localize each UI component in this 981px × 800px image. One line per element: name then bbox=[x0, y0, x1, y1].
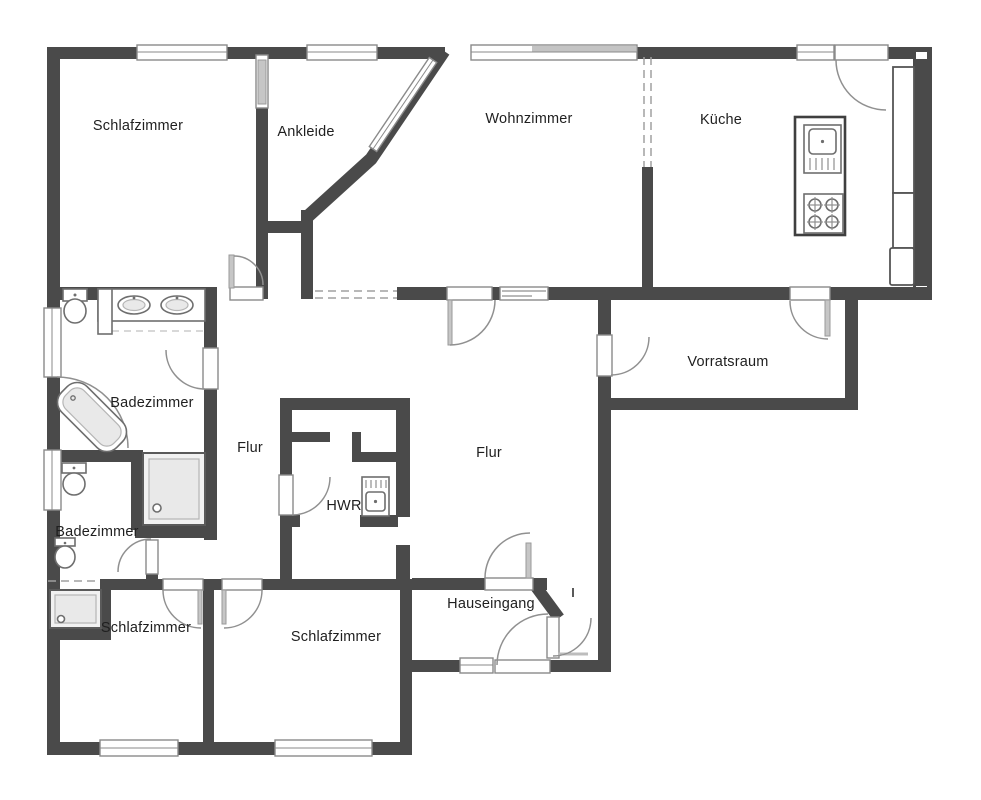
wall-segment bbox=[262, 579, 412, 590]
door-badezimmer-gross bbox=[166, 348, 218, 389]
wall-segment bbox=[396, 398, 410, 517]
wall-segment bbox=[292, 432, 330, 442]
wall-segment bbox=[178, 742, 275, 755]
wall-segment bbox=[47, 47, 60, 308]
door-hwr bbox=[279, 475, 330, 515]
window bbox=[44, 450, 61, 510]
wall-segment bbox=[598, 398, 858, 410]
wall-segment bbox=[598, 375, 611, 672]
tall-cabinet bbox=[890, 67, 914, 285]
wall-segment bbox=[47, 47, 137, 59]
wall-segment bbox=[913, 47, 932, 298]
window bbox=[797, 45, 834, 60]
room-label-schlafzimmer-nw: Schlafzimmer bbox=[93, 118, 183, 134]
window bbox=[44, 308, 61, 377]
room-label-schlafzimmer-sm: Schlafzimmer bbox=[291, 629, 381, 645]
room-label-flur-links: Flur bbox=[237, 440, 263, 456]
room-label-badezimmer-gross: Badezimmer bbox=[110, 395, 193, 411]
wall-segment bbox=[203, 590, 214, 742]
wall-segment bbox=[280, 398, 408, 410]
toilet bbox=[63, 289, 87, 323]
door-kueche-aussen bbox=[835, 45, 888, 110]
room-label-ankleide: Ankleide bbox=[277, 124, 334, 140]
wall-notch bbox=[916, 52, 927, 59]
room-label-hauseingang: Hauseingang bbox=[447, 596, 535, 612]
shower bbox=[50, 590, 101, 628]
floor-plan: Schlafzimmer Ankleide Wohnzimmer Küche V… bbox=[0, 0, 981, 800]
wall-segment bbox=[637, 47, 797, 59]
wall-segment bbox=[612, 287, 790, 300]
wall-segment bbox=[280, 410, 292, 475]
wall-segment bbox=[292, 515, 300, 527]
fixtures bbox=[50, 67, 914, 628]
sliding-door bbox=[500, 287, 548, 300]
door-badezimmer-klein bbox=[118, 539, 158, 574]
wall-segment bbox=[550, 660, 608, 672]
sliding-pocket-door bbox=[256, 55, 268, 108]
bathtub bbox=[52, 377, 133, 458]
window bbox=[307, 45, 377, 60]
wall-segment bbox=[135, 525, 217, 538]
wall-segment bbox=[280, 515, 292, 588]
kitchen-island bbox=[795, 117, 845, 235]
door-hauseingang-aussen bbox=[495, 614, 550, 673]
door-schlafzimmer-sm bbox=[222, 579, 262, 628]
wall-segment bbox=[397, 287, 447, 300]
wall-segment bbox=[412, 660, 460, 672]
wall-segment bbox=[204, 296, 217, 348]
washing-machine bbox=[362, 477, 389, 516]
door-wohnzimmer-flur bbox=[447, 287, 495, 345]
stove-icon bbox=[804, 194, 843, 233]
doors bbox=[118, 45, 888, 673]
kitchen-sink-icon bbox=[804, 125, 841, 173]
wall-segment bbox=[361, 452, 398, 462]
wall-segment bbox=[642, 167, 653, 290]
wall-segment bbox=[203, 579, 222, 590]
window bbox=[275, 740, 372, 756]
double-sink-vanity bbox=[98, 289, 205, 334]
room-label-wohnzimmer: Wohnzimmer bbox=[485, 111, 572, 127]
door-kueche-vorratsraum bbox=[790, 287, 830, 339]
window bbox=[460, 658, 493, 673]
window bbox=[100, 740, 178, 756]
wall-segment bbox=[256, 108, 268, 223]
room-label-badezimmer-klein: Badezimmer bbox=[55, 524, 138, 540]
wall-segment bbox=[352, 432, 361, 462]
wall-segment bbox=[830, 287, 932, 300]
door-windfang bbox=[547, 617, 591, 658]
room-label-vorratsraum: Vorratsraum bbox=[687, 354, 768, 370]
wall-segment bbox=[47, 742, 100, 755]
wall-segment bbox=[301, 210, 313, 299]
shower bbox=[143, 453, 205, 525]
diagonal-window bbox=[369, 58, 436, 152]
door-vorratsraum bbox=[597, 335, 649, 376]
room-label-schlafzimmer-sw: Schlafzimmer bbox=[101, 620, 191, 636]
wall-segment bbox=[131, 450, 143, 530]
room-label-hwr: HWR bbox=[326, 498, 361, 514]
wall-segment bbox=[598, 293, 611, 335]
window bbox=[471, 45, 637, 60]
sink bbox=[62, 463, 86, 495]
room-label-kueche: Küche bbox=[700, 112, 742, 128]
wall-segment bbox=[845, 300, 858, 410]
room-label-flur-mitte: Flur bbox=[476, 445, 502, 461]
wall-segment bbox=[47, 377, 60, 450]
toilet bbox=[55, 538, 75, 568]
door-flur-hauseingang bbox=[485, 533, 533, 590]
wall-segment bbox=[400, 579, 412, 755]
wall-segment bbox=[412, 578, 485, 590]
window bbox=[137, 45, 227, 60]
